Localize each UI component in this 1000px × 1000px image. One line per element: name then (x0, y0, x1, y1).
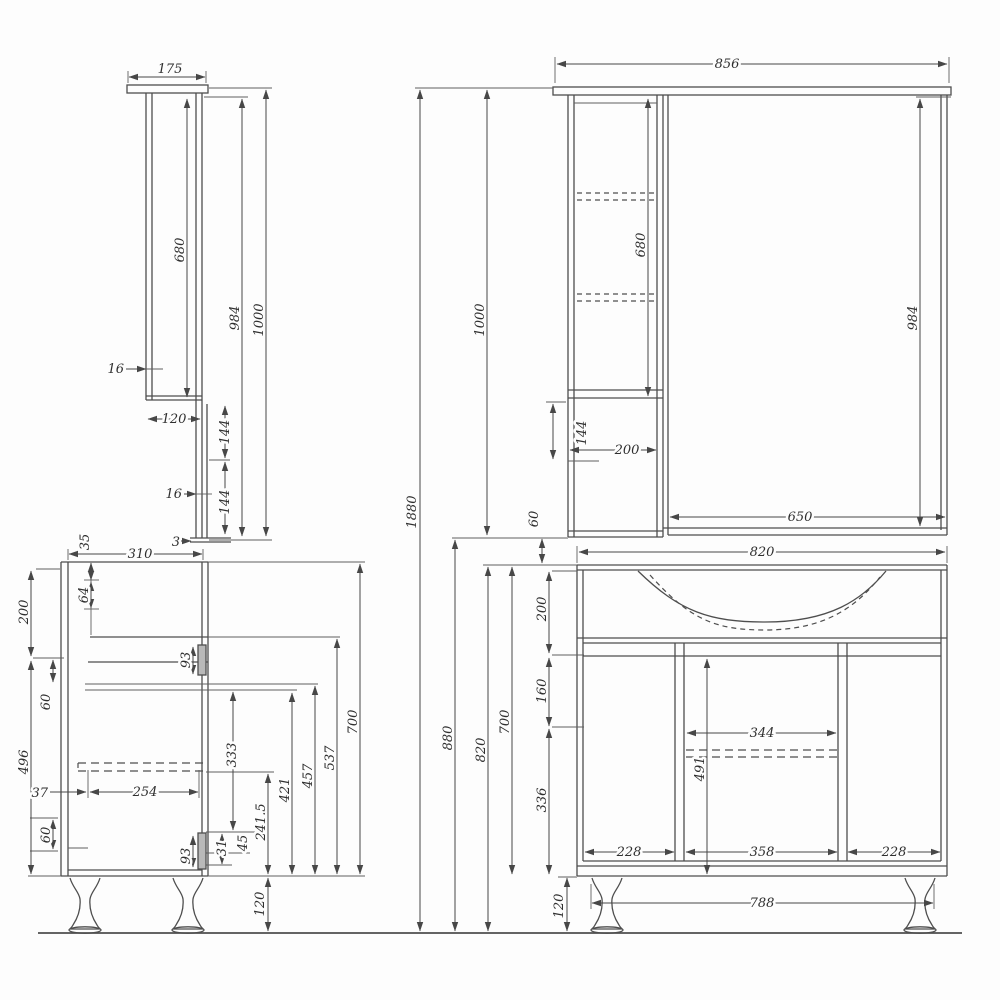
dim-vanity-side-slide-height: 333 (225, 743, 240, 768)
dim-vanity-side-hinge-offset-31: 31 (215, 840, 230, 857)
dim-mirror-front-column-width: 200 (614, 443, 640, 458)
dim-vanity-front-left-door: 228 (616, 845, 642, 860)
dim-vanity-front-lower-section: 336 (535, 788, 550, 813)
dim-mirror-side-height-below-top: 984 (228, 306, 243, 331)
dim-vanity-side-drawer-front: 64 (77, 587, 92, 604)
dim-mirror-side-shelf-height: 680 (173, 238, 188, 263)
vanity-front-view: 820 200 160 336 344 491 700 820 880 228 … (441, 540, 947, 933)
dim-mirror-front-height-below-top: 984 (906, 306, 921, 331)
dim-vanity-front-under-basin-offset: 160 (535, 679, 550, 704)
dim-vanity-side-depth: 310 (128, 547, 153, 562)
dim-mirror-front-total-width: 856 (715, 57, 740, 72)
dim-vanity-front-leg-height: 120 (552, 894, 567, 919)
dim-vanity-side-421: 421 (278, 778, 293, 804)
hinge-plate-upper (198, 645, 206, 675)
vanity-side-view: 310 35 64 200 496 60 37 254 60 93 93 31 … (17, 534, 365, 933)
mirror-side-top-panel (127, 85, 208, 93)
dim-vanity-front-basin-section: 200 (535, 597, 550, 623)
dim-vanity-front-right-door: 228 (881, 845, 907, 860)
dim-vanity-side-hinge-upper: 93 (179, 652, 194, 669)
mirror-front-view: 856 680 144 200 650 984 1000 (415, 57, 951, 538)
dim-vanity-side-leg-height: 120 (253, 892, 268, 917)
dim-vanity-front-leg-span: 788 (750, 896, 775, 911)
dim-vanity-side-lower-gap: 60 (39, 827, 54, 844)
dim-vanity-side-carcass-height: 496 (17, 750, 32, 776)
dim-mirror-side-total-height: 1000 (252, 303, 267, 336)
dim-vanity-front-shelf-width: 344 (750, 726, 775, 741)
dim-vanity-side-hinge-offset-45: 45 (236, 835, 251, 853)
dim-mirror-front-mirror-width: 650 (788, 510, 813, 525)
dim-vanity-front-height-with-gap: 880 (441, 726, 456, 751)
dim-mirror-side-bottom-gap: 3 (172, 535, 180, 550)
dim-mirror-side-rail-lower: 144 (218, 490, 233, 515)
dim-vanity-side-upper-section: 200 (17, 600, 32, 626)
dim-vanity-front-middle-door: 358 (750, 845, 775, 860)
dim-mirror-side-top-depth: 175 (158, 62, 183, 77)
assembly-dimensions: 1880 60 (38, 90, 962, 933)
dim-vanity-side-457: 457 (301, 763, 316, 790)
dim-mirror-side-rail-thickness: 16 (165, 487, 182, 502)
dim-mirror-front-total-height: 1000 (473, 303, 488, 336)
dim-vanity-side-top-offset: 35 (78, 534, 93, 551)
dim-vanity-side-241-5: 241.5 (254, 803, 269, 841)
dim-vanity-front-body-height: 700 (498, 710, 513, 735)
dim-vanity-side-upper-gap: 60 (39, 694, 54, 711)
dim-vanity-side-hinge-lower: 93 (179, 848, 194, 865)
dim-vanity-front-top-width: 820 (750, 545, 775, 560)
dim-assembly-gap: 60 (527, 511, 542, 528)
dim-vanity-side-body-height: 700 (346, 710, 361, 735)
dim-mirror-side-panel-thickness: 16 (107, 362, 124, 377)
basin-outline (638, 571, 886, 622)
technical-drawing-canvas: 175 680 16 120 144 16 144 3 984 1000 (0, 0, 1000, 1000)
dim-mirror-front-rail-height: 144 (575, 421, 590, 446)
dim-vanity-side-537: 537 (323, 745, 338, 771)
mirror-side-view: 175 680 16 120 144 16 144 3 984 1000 (107, 62, 272, 550)
dim-vanity-front-total-height: 820 (474, 738, 489, 763)
dim-vanity-front-inner-height: 491 (693, 757, 708, 783)
vanity-side-leg-left (70, 878, 100, 929)
dim-mirror-side-rail-upper: 144 (218, 420, 233, 445)
hinge-plate-lower (198, 833, 206, 869)
dim-mirror-front-shelf-height: 680 (634, 233, 649, 258)
mirror-front-top-panel (553, 87, 951, 95)
dim-vanity-side-drawer-depth: 254 (132, 785, 158, 800)
vanity-side-leg-right (173, 878, 203, 929)
dim-vanity-side-back-offset: 37 (31, 786, 48, 801)
dim-mirror-side-body-depth: 120 (162, 412, 187, 427)
dim-assembly-total-height: 1880 (405, 495, 420, 528)
technical-drawing-page: 175 680 16 120 144 16 144 3 984 1000 (0, 0, 1000, 1000)
